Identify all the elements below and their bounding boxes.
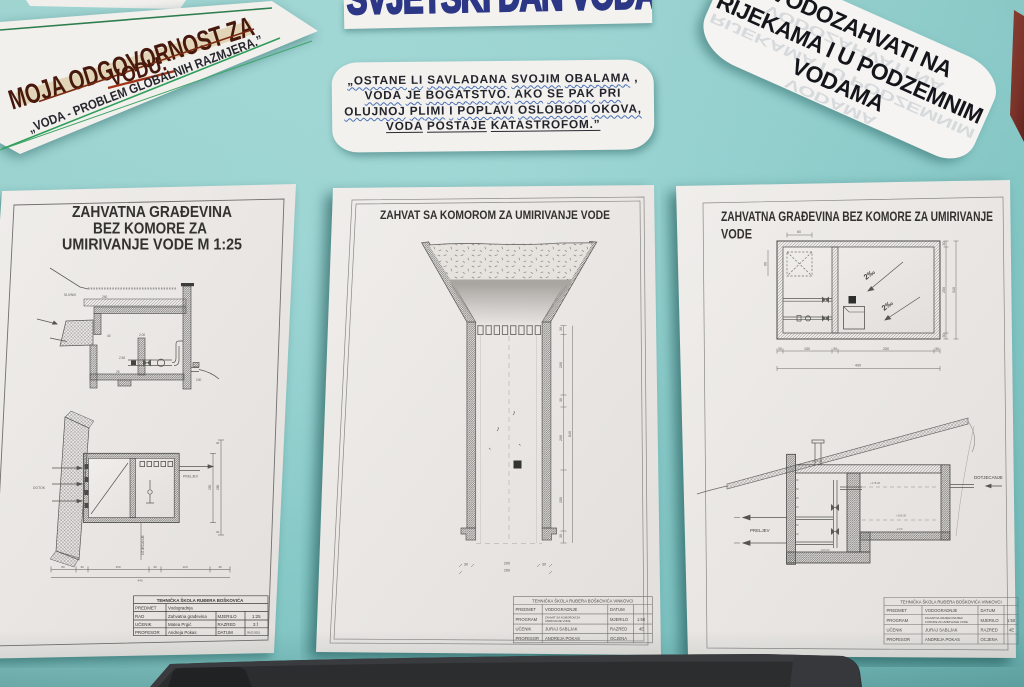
svg-text:1:25: 1:25 (252, 614, 261, 619)
svg-text:30: 30 (216, 441, 220, 445)
svg-text:VODOGRADNJE: VODOGRADNJE (545, 607, 578, 612)
svg-text:60: 60 (764, 262, 768, 266)
svg-text:MJERILO: MJERILO (218, 614, 238, 619)
svg-text:DATUM: DATUM (981, 608, 996, 613)
svg-text:VODE: VODE (721, 227, 752, 243)
svg-text:120: 120 (182, 565, 187, 569)
svg-text:PRELJEV: PRELJEV (183, 475, 199, 479)
svg-text:200: 200 (504, 562, 510, 566)
svg-text:30: 30 (80, 565, 84, 569)
svg-text:UMIRIVANJE VODE: UMIRIVANJE VODE (545, 619, 571, 623)
svg-text:30: 30 (942, 334, 946, 338)
svg-text:3.f: 3.f (253, 622, 259, 627)
svg-text:OTJECANJE: OTJECANJE (141, 534, 145, 555)
svg-text:250: 250 (208, 484, 212, 490)
svg-text:840: 840 (568, 431, 572, 437)
svg-text:+179.00: +179.00 (812, 459, 823, 463)
svg-text:2.50: 2.50 (119, 356, 125, 360)
svg-text:RAD: RAD (135, 614, 144, 619)
svg-text:+165.00: +165.00 (896, 514, 907, 518)
svg-text:100: 100 (196, 378, 202, 382)
svg-text:30: 30 (778, 347, 782, 351)
svg-text:2.00: 2.00 (139, 333, 145, 337)
svg-text:MJERILO: MJERILO (981, 618, 1000, 623)
svg-text:SLIVNIK: SLIVNIK (64, 293, 77, 297)
svg-text:DOTJECANJE: DOTJECANJE (974, 475, 1003, 480)
svg-text:80: 80 (61, 565, 65, 569)
svg-text:200: 200 (559, 435, 563, 441)
svg-text:200: 200 (559, 362, 563, 368)
svg-text:UMIRIVANJE VODE M 1:25: UMIRIVANJE VODE M 1:25 (62, 237, 242, 254)
svg-text:150: 150 (804, 347, 810, 351)
svg-text:440: 440 (137, 579, 142, 583)
svg-text:260: 260 (504, 569, 510, 573)
svg-text:TEHNIČKA ŠKOLA RUĐERA BOŠKOVIĆ: TEHNIČKA ŠKOLA RUĐERA BOŠKOVIĆA (157, 598, 244, 603)
svg-text:30: 30 (559, 398, 563, 402)
svg-text:Matea Prgić: Matea Prgić (168, 622, 192, 627)
svg-text:PROGRAM: PROGRAM (887, 618, 909, 623)
svg-text:30: 30 (216, 530, 220, 534)
svg-text:30: 30 (218, 565, 222, 569)
svg-text:TEHNIČKA ŠKOLA RUĐERA BOŠKOVIĆ: TEHNIČKA ŠKOLA RUĐERA BOŠKOVIĆA VINKOVCI (900, 599, 1001, 604)
svg-text:PREDMET: PREDMET (516, 607, 537, 612)
svg-text:40: 40 (107, 334, 111, 338)
svg-text:BEZ KOMORE ZA: BEZ KOMORE ZA (93, 221, 207, 238)
svg-text:250: 250 (883, 347, 889, 351)
svg-text:30: 30 (559, 327, 563, 331)
svg-text:1:50: 1:50 (1007, 618, 1016, 623)
svg-text:ZAHVATNA GRAĐEVINA: ZAHVATNA GRAĐEVINA (72, 204, 232, 221)
svg-text:30: 30 (935, 347, 939, 351)
svg-text:TEHNIČKA ŠKOLA RUĐERA BOŠKOVIĆ: TEHNIČKA ŠKOLA RUĐERA BOŠKOVIĆA VINKOVCI (532, 599, 633, 604)
svg-text:-2.00: -2.00 (896, 527, 903, 531)
svg-text:1:50: 1:50 (637, 617, 646, 622)
svg-text:150: 150 (559, 497, 563, 503)
svg-text:25: 25 (116, 370, 120, 374)
svg-text:30: 30 (153, 565, 157, 569)
svg-text:ZAHVAT SA KOMOROM ZA UMIRIVANJ: ZAHVAT SA KOMOROM ZA UMIRIVANJE VODE (380, 208, 610, 222)
svg-text:Zahvatna građevina: Zahvatna građevina (168, 614, 207, 619)
svg-text:DOTOK: DOTOK (33, 486, 46, 490)
svg-text:DATUM: DATUM (610, 607, 625, 612)
svg-text:30: 30 (464, 563, 468, 567)
svg-text:-160.00: -160.00 (820, 548, 830, 552)
svg-text:VODOGRADNJE: VODOGRADNJE (925, 608, 958, 613)
svg-text:150: 150 (115, 565, 120, 569)
svg-text:MJERILO: MJERILO (610, 617, 629, 622)
svg-text:+178.00: +178.00 (870, 481, 881, 485)
svg-text:280: 280 (216, 484, 220, 490)
svg-text:Vodogradnja: Vodogradnja (168, 606, 193, 611)
svg-text:60: 60 (797, 230, 801, 234)
svg-text:UČENIK: UČENIK (135, 622, 152, 627)
svg-text:PREDMET: PREDMET (887, 608, 908, 613)
svg-text:30: 30 (559, 534, 563, 538)
svg-text:30: 30 (542, 563, 546, 567)
svg-text:ZAHVATNA GRAĐEVINA BEZ KOMORE: ZAHVATNA GRAĐEVINA BEZ KOMORE ZA UMIRIVA… (721, 209, 993, 225)
svg-text:PRELJEV: PRELJEV (750, 528, 770, 533)
svg-text:310: 310 (952, 287, 956, 293)
svg-text:490: 490 (855, 364, 861, 368)
svg-text:RAZRED: RAZRED (218, 622, 236, 627)
svg-text:30: 30 (942, 242, 946, 246)
svg-text:KOMORE ZA UMIRIVANJE VODE: KOMORE ZA UMIRIVANJE VODE (925, 620, 968, 624)
svg-text:PREDMET: PREDMET (135, 606, 157, 611)
svg-text:30: 30 (833, 347, 837, 351)
svg-text:PROGRAM: PROGRAM (516, 617, 538, 622)
svg-text:250: 250 (942, 287, 946, 293)
svg-text:240: 240 (102, 295, 108, 299)
